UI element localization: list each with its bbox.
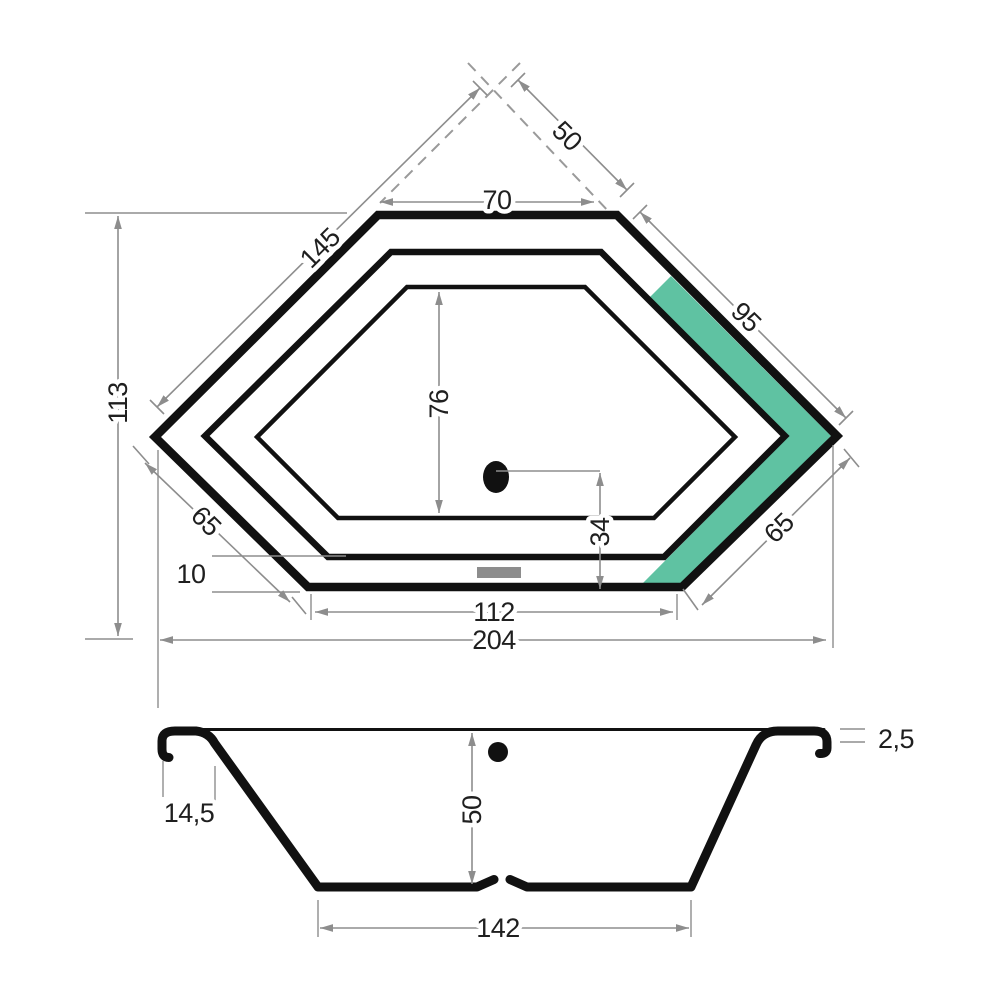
blueprint-canvas: 145 50 70 95 113 [0, 0, 1000, 1000]
dim-front-edge-label: 112 [473, 597, 515, 627]
dim-lower-left-edge: 65 [133, 446, 306, 614]
bathtub-technical-drawing: 145 50 70 95 113 [0, 0, 1000, 1000]
dim-drain-to-front-label: 34 [585, 517, 615, 547]
drain-top-view [483, 461, 509, 493]
dim-rim-width-label: 10 [176, 559, 205, 589]
dim-rim-thickness-label: 2,5 [878, 724, 914, 754]
dim-floor-length: 142 [318, 900, 691, 943]
dim-basin-length-label: 76 [424, 389, 454, 418]
tub-outer-edge [155, 215, 837, 587]
dim-overall-depth-label: 113 [103, 382, 133, 424]
dim-front-edge: 112 [311, 594, 677, 627]
dim-depth: 50 [457, 733, 487, 884]
dim-side-rim-width: 14,5 [163, 761, 215, 828]
dim-depth-label: 50 [457, 795, 487, 824]
side-view: 50 14,5 2,5 142 [162, 724, 914, 943]
dim-top-edge: 70 [380, 185, 594, 215]
dim-wall-right: 50 [511, 73, 634, 197]
dim-wall-left-label: 145 [294, 222, 346, 274]
dim-side-rim-width-label: 14,5 [164, 798, 215, 828]
top-view: 145 50 70 95 113 [85, 63, 859, 708]
dim-wall-left: 145 [150, 81, 487, 414]
dim-wall-right-label: 50 [546, 115, 588, 157]
dim-rim-thickness: 2,5 [840, 724, 914, 754]
dim-basin-length: 76 [424, 292, 454, 513]
wall-corner-dashed-left [380, 63, 520, 203]
dim-overall-width-label: 204 [472, 625, 516, 655]
dim-floor-length-label: 142 [476, 913, 520, 943]
dim-top-edge-label: 70 [482, 185, 511, 215]
drain-side-view [488, 742, 508, 762]
overflow-slot [477, 567, 521, 578]
